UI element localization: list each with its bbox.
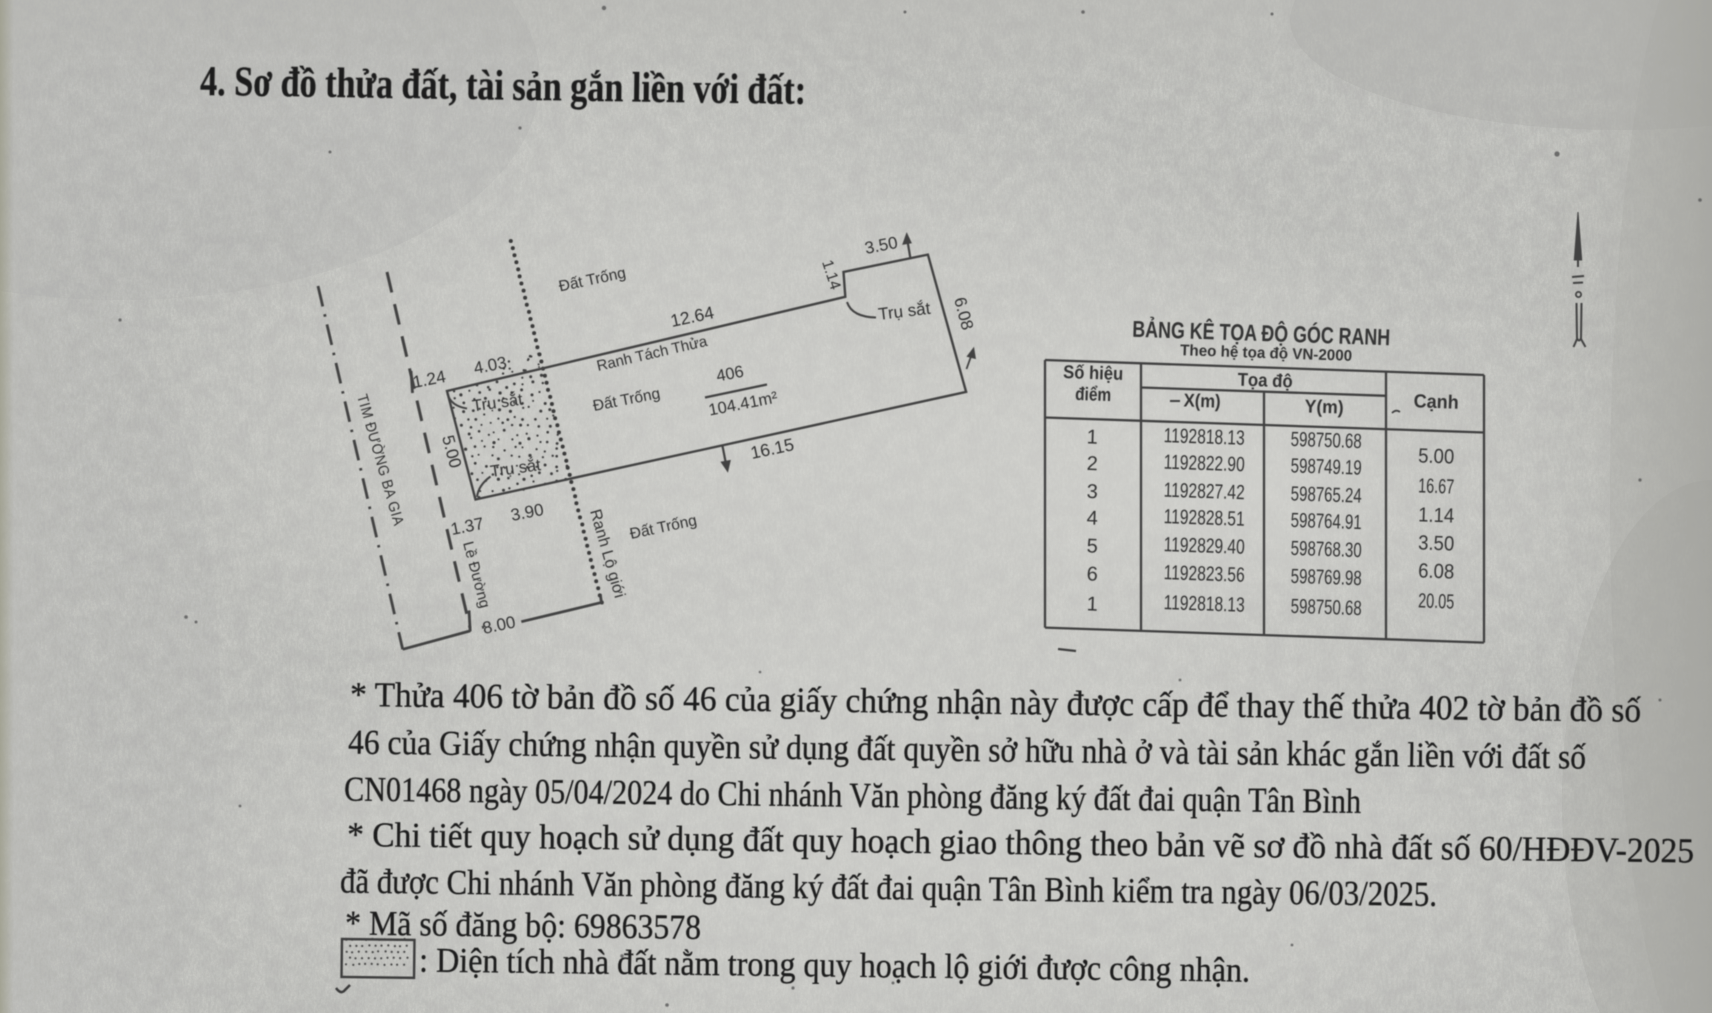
svg-text:598765.24: 598765.24: [1290, 482, 1362, 507]
svg-text:598750.68: 598750.68: [1290, 428, 1362, 453]
svg-text:598768.30: 598768.30: [1290, 537, 1362, 562]
svg-text:X(m): X(m): [1183, 389, 1221, 411]
svg-text:1192827.42: 1192827.42: [1163, 479, 1245, 505]
svg-text:598769.98: 598769.98: [1290, 565, 1362, 590]
svg-text:598749.19: 598749.19: [1290, 454, 1362, 479]
svg-text:Y(m): Y(m): [1304, 395, 1344, 417]
svg-text:1192818.13: 1192818.13: [1163, 424, 1245, 450]
svg-text:3: 3: [1086, 481, 1098, 503]
svg-text:Tọa độ: Tọa độ: [1237, 369, 1293, 392]
svg-text:1.14: 1.14: [1418, 503, 1455, 527]
svg-text:598750.68: 598750.68: [1290, 595, 1362, 620]
svg-text:4: 4: [1086, 507, 1098, 529]
svg-text:1192829.40: 1192829.40: [1163, 533, 1245, 559]
svg-text:1192818.13: 1192818.13: [1163, 591, 1245, 617]
svg-text:20.05: 20.05: [1418, 589, 1455, 613]
svg-text:2: 2: [1086, 453, 1098, 475]
svg-text:1192823.56: 1192823.56: [1163, 561, 1245, 587]
svg-text:16.67: 16.67: [1418, 474, 1455, 498]
svg-text:598764.91: 598764.91: [1290, 509, 1362, 534]
svg-text:1: 1: [1086, 426, 1098, 448]
svg-text:5.00: 5.00: [1418, 444, 1455, 468]
svg-text:1192828.51: 1192828.51: [1163, 505, 1245, 531]
svg-text:4. Sơ đồ thửa đất, tài sản gắn: 4. Sơ đồ thửa đất, tài sản gắn liền với …: [200, 58, 807, 114]
svg-text:3.50: 3.50: [1418, 531, 1455, 555]
svg-text:điểm: điểm: [1075, 383, 1112, 405]
svg-text:6: 6: [1086, 563, 1098, 585]
svg-text:1192822.90: 1192822.90: [1163, 451, 1245, 477]
svg-text:Số hiệu: Số hiệu: [1063, 361, 1124, 384]
svg-text:5: 5: [1086, 535, 1098, 557]
svg-text:6.08: 6.08: [1418, 559, 1455, 583]
svg-text:Cạnh: Cạnh: [1413, 391, 1459, 413]
svg-text:1: 1: [1086, 593, 1098, 615]
